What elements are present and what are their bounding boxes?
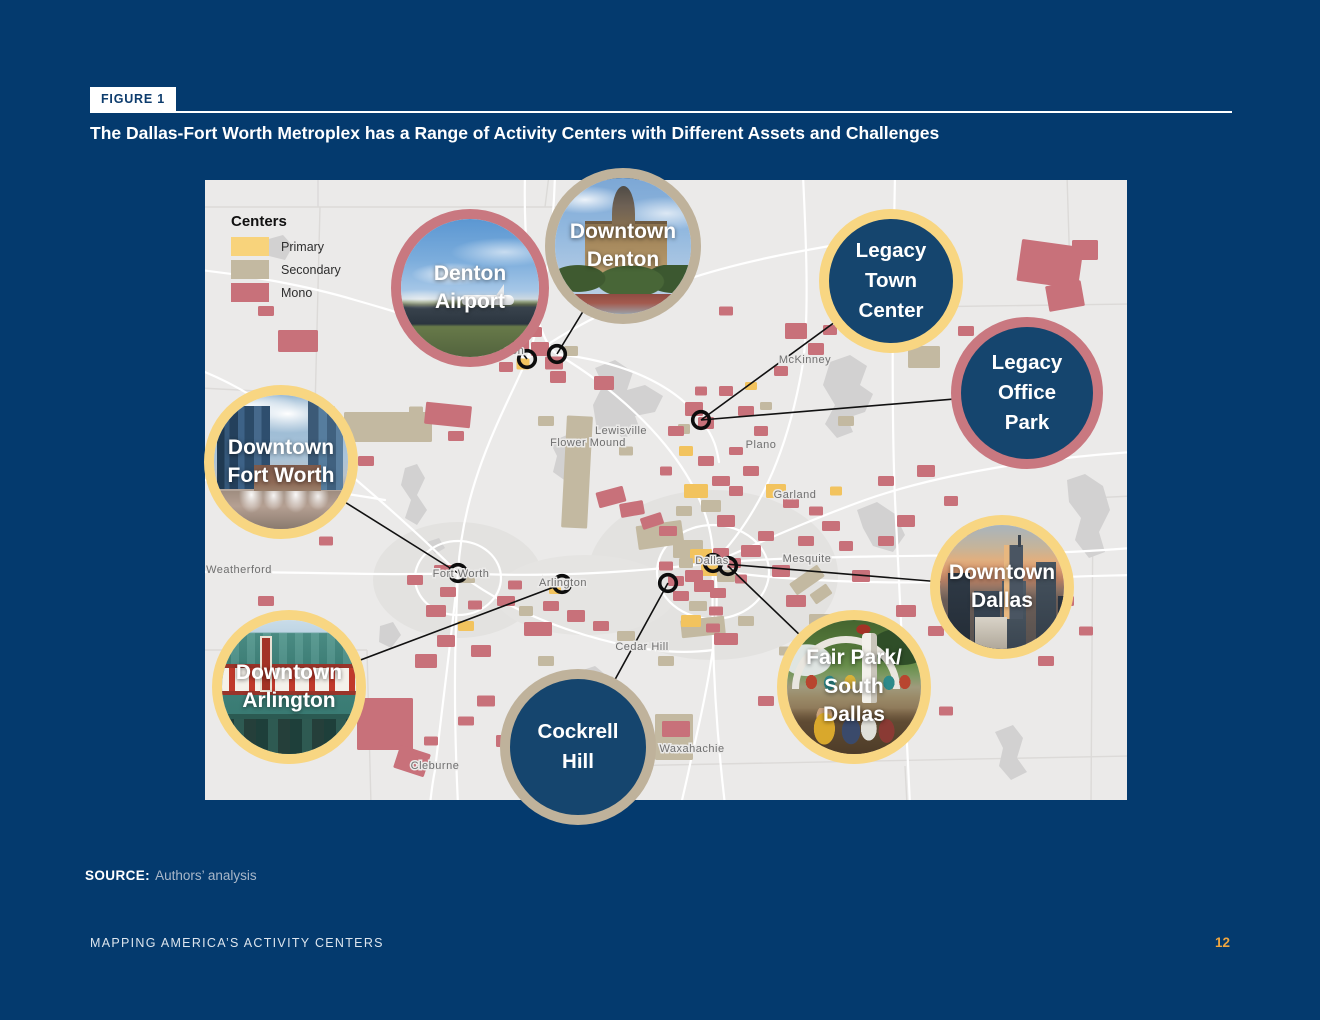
legend-title: Centers: [231, 213, 341, 230]
source-line: SOURCE:Authors’ analysis: [85, 868, 257, 883]
legend-swatch-secondary: [231, 260, 269, 279]
callouts-layer: Denton AirportDowntown DentonLegacy Town…: [205, 180, 1127, 800]
callout-label-downtown-arlington: Downtown Arlington: [222, 620, 356, 754]
legend-item-mono: Mono: [231, 283, 341, 302]
map-legend: Centers Primary Secondary Mono: [231, 213, 341, 306]
header-rule: [90, 111, 1232, 113]
figure-title: The Dallas-Fort Worth Metroplex has a Ra…: [90, 123, 1250, 144]
page-number: 12: [1215, 935, 1230, 950]
callout-label-legacy-office-park: Legacy Office Park: [961, 327, 1093, 459]
legend-swatch-mono: [231, 283, 269, 302]
callout-downtown-denton: Downtown Denton: [545, 168, 701, 324]
callout-label-fair-park: Fair Park/ South Dallas: [787, 620, 921, 754]
callout-downtown-arlington: Downtown Arlington: [212, 610, 366, 764]
callout-label-legacy-town-center: Legacy Town Center: [829, 219, 953, 343]
callout-cockrell-hill: Cockrell Hill: [500, 669, 656, 825]
callout-legacy-town-center: Legacy Town Center: [819, 209, 963, 353]
callout-label-denton-airport: Denton Airport: [401, 219, 539, 357]
legend-label-secondary: Secondary: [281, 263, 341, 277]
callout-downtown-fort-worth: Downtown Fort Worth: [204, 385, 358, 539]
legend-swatch-primary: [231, 237, 269, 256]
legend-label-mono: Mono: [281, 286, 312, 300]
legend-item-secondary: Secondary: [231, 260, 341, 279]
report-page: FIGURE 1 The Dallas-Fort Worth Metroplex…: [0, 0, 1320, 1020]
callout-label-cockrell-hill: Cockrell Hill: [510, 679, 646, 815]
callout-label-downtown-fort-worth: Downtown Fort Worth: [214, 395, 348, 529]
callout-label-downtown-denton: Downtown Denton: [555, 178, 691, 314]
map: DentonMcKinneyLewisvilleFlower MoundPlan…: [205, 180, 1127, 800]
callout-label-downtown-dallas: Downtown Dallas: [940, 525, 1064, 649]
callout-downtown-dallas: Downtown Dallas: [930, 515, 1074, 659]
callout-fair-park: Fair Park/ South Dallas: [777, 610, 931, 764]
source-label: SOURCE:: [85, 868, 150, 883]
legend-item-primary: Primary: [231, 237, 341, 256]
legend-label-primary: Primary: [281, 240, 324, 254]
source-text: Authors’ analysis: [155, 868, 257, 883]
figure-tag: FIGURE 1: [90, 87, 176, 111]
callout-legacy-office-park: Legacy Office Park: [951, 317, 1103, 469]
footer-title: MAPPING AMERICA’S ACTIVITY CENTERS: [90, 936, 384, 950]
callout-denton-airport: Denton Airport: [391, 209, 549, 367]
